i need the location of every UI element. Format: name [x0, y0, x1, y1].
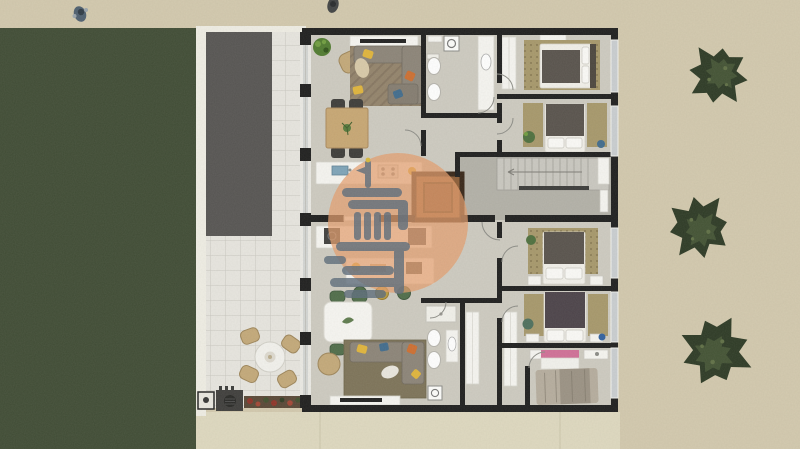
texture-dark: [0, 0, 800, 449]
site-plan-svg: [0, 0, 800, 449]
floor-plan-scene: [0, 0, 800, 449]
